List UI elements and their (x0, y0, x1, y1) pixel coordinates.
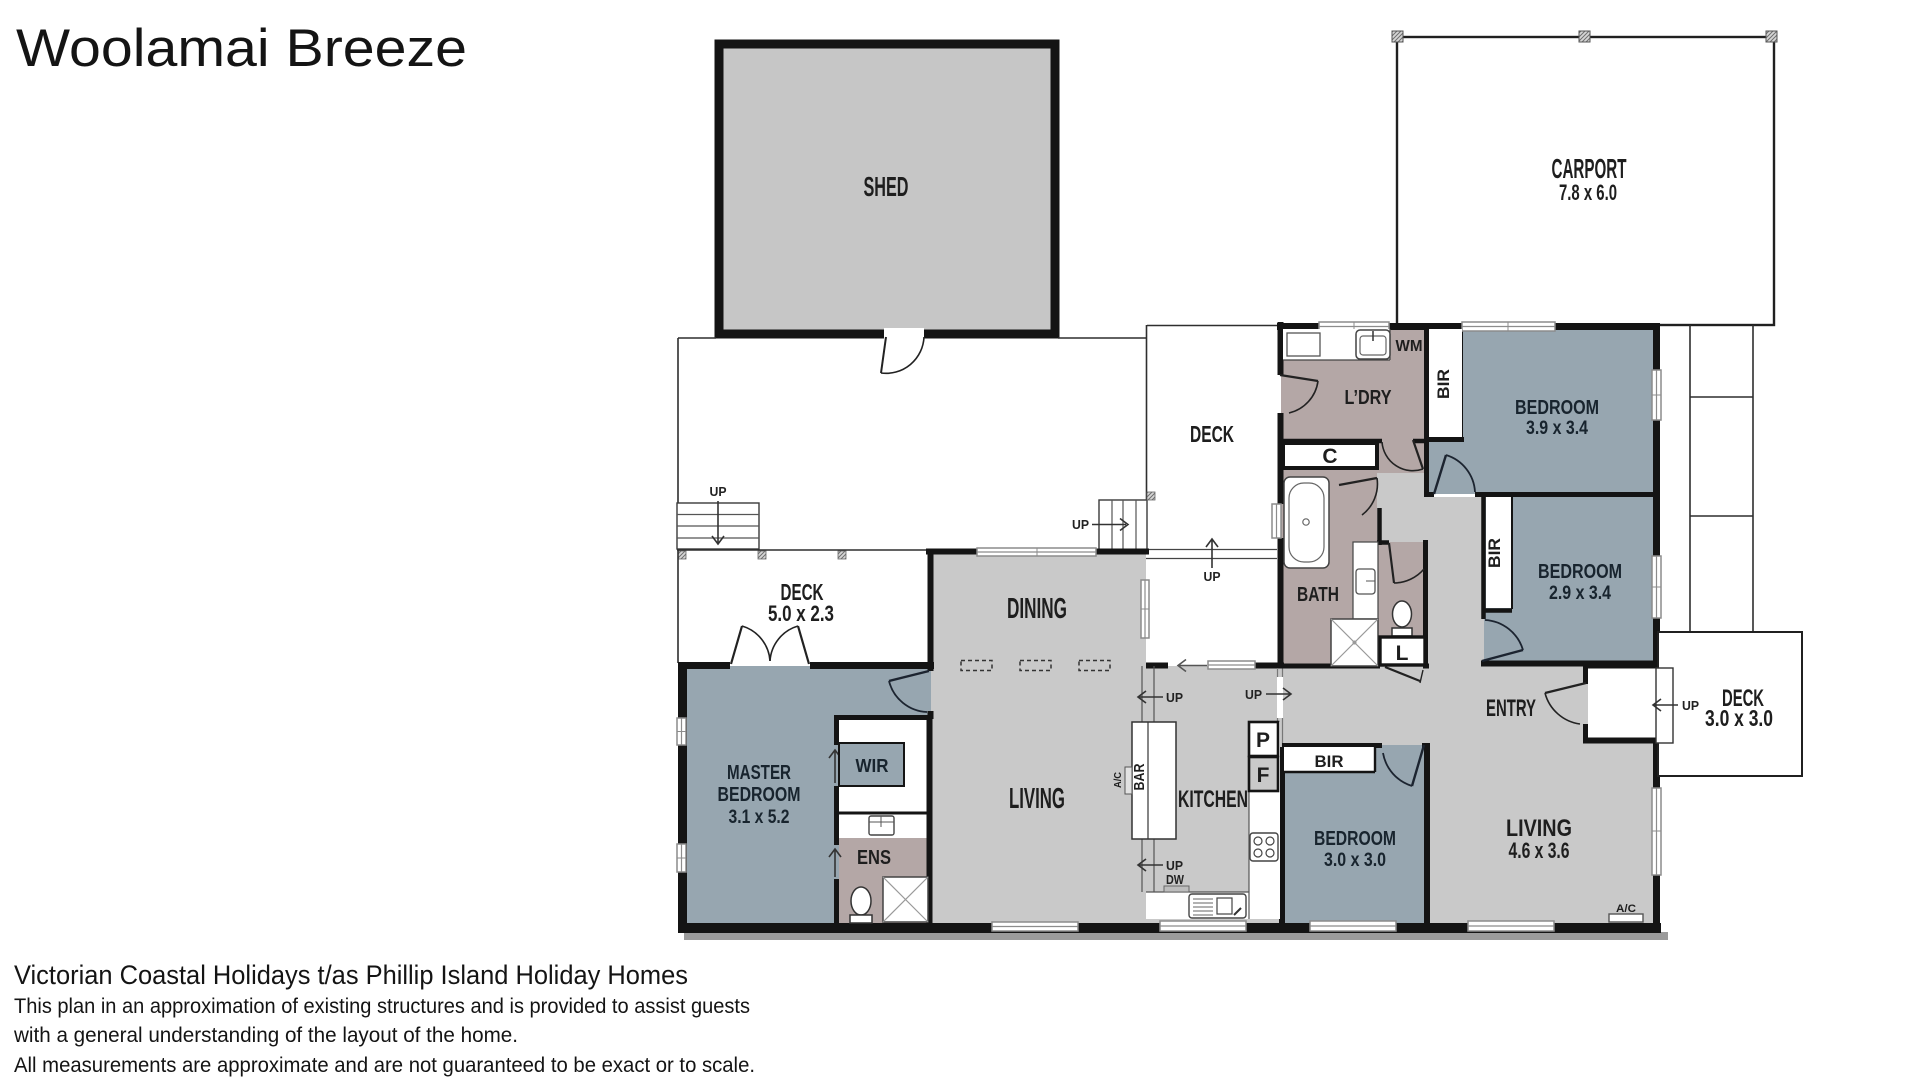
svg-text:ENS: ENS (857, 847, 891, 869)
svg-text:UP: UP (1682, 698, 1699, 713)
svg-text:DW: DW (1166, 872, 1185, 887)
svg-text:C: C (1322, 445, 1337, 468)
svg-text:UP: UP (1166, 690, 1183, 705)
svg-text:L’DRY: L’DRY (1345, 387, 1393, 409)
svg-text:3.0 x 3.0: 3.0 x 3.0 (1324, 850, 1386, 871)
svg-text:A/C: A/C (1113, 772, 1124, 788)
svg-text:BEDROOM: BEDROOM (718, 784, 801, 806)
svg-text:WIR: WIR (856, 756, 889, 776)
svg-text:2.9 x 3.4: 2.9 x 3.4 (1549, 583, 1611, 604)
svg-text:3.1 x 5.2: 3.1 x 5.2 (729, 807, 790, 828)
svg-text:SHED: SHED (864, 171, 909, 202)
svg-text:DECK: DECK (1190, 421, 1234, 447)
svg-text:UP: UP (710, 484, 727, 499)
svg-text:P: P (1256, 729, 1270, 752)
svg-text:5.0 x 2.3: 5.0 x 2.3 (768, 601, 834, 626)
svg-text:WM: WM (1396, 338, 1423, 355)
svg-text:BATH: BATH (1297, 584, 1339, 606)
svg-text:with a general understanding o: with a general understanding of the layo… (13, 1024, 518, 1047)
svg-text:7.8 x 6.0: 7.8 x 6.0 (1559, 180, 1617, 205)
svg-text:UP: UP (1204, 569, 1221, 584)
svg-text:MASTER: MASTER (727, 762, 791, 784)
svg-text:L: L (1396, 642, 1409, 665)
svg-text:BAR: BAR (1131, 763, 1148, 790)
svg-text:Victorian Coastal Holidays t/a: Victorian Coastal Holidays t/as Phillip … (14, 960, 688, 990)
svg-text:KITCHEN: KITCHEN (1178, 786, 1248, 813)
svg-text:A/C: A/C (1616, 903, 1636, 915)
svg-text:BEDROOM: BEDROOM (1314, 828, 1396, 850)
svg-text:This plan in an approximation: This plan in an approximation of existin… (14, 995, 750, 1018)
svg-text:UP: UP (1166, 858, 1183, 873)
svg-text:LIVING: LIVING (1009, 783, 1065, 815)
svg-text:BIR: BIR (1485, 538, 1504, 568)
svg-text:3.9 x 3.4: 3.9 x 3.4 (1526, 418, 1588, 439)
svg-text:BEDROOM: BEDROOM (1538, 561, 1622, 583)
svg-text:UP: UP (1072, 517, 1089, 532)
svg-text:DINING: DINING (1007, 593, 1067, 625)
svg-text:Woolamai Breeze: Woolamai Breeze (16, 19, 467, 78)
svg-text:UP: UP (1245, 687, 1262, 702)
svg-text:All measurements are approxima: All measurements are approximate and are… (14, 1054, 755, 1077)
svg-text:BEDROOM: BEDROOM (1515, 397, 1599, 419)
svg-text:F: F (1257, 764, 1270, 787)
svg-text:ENTRY: ENTRY (1486, 695, 1536, 722)
svg-text:4.6 x 3.6: 4.6 x 3.6 (1509, 838, 1570, 863)
svg-text:BIR: BIR (1315, 752, 1344, 771)
svg-text:3.0 x 3.0: 3.0 x 3.0 (1705, 705, 1773, 731)
svg-text:BIR: BIR (1434, 369, 1453, 399)
